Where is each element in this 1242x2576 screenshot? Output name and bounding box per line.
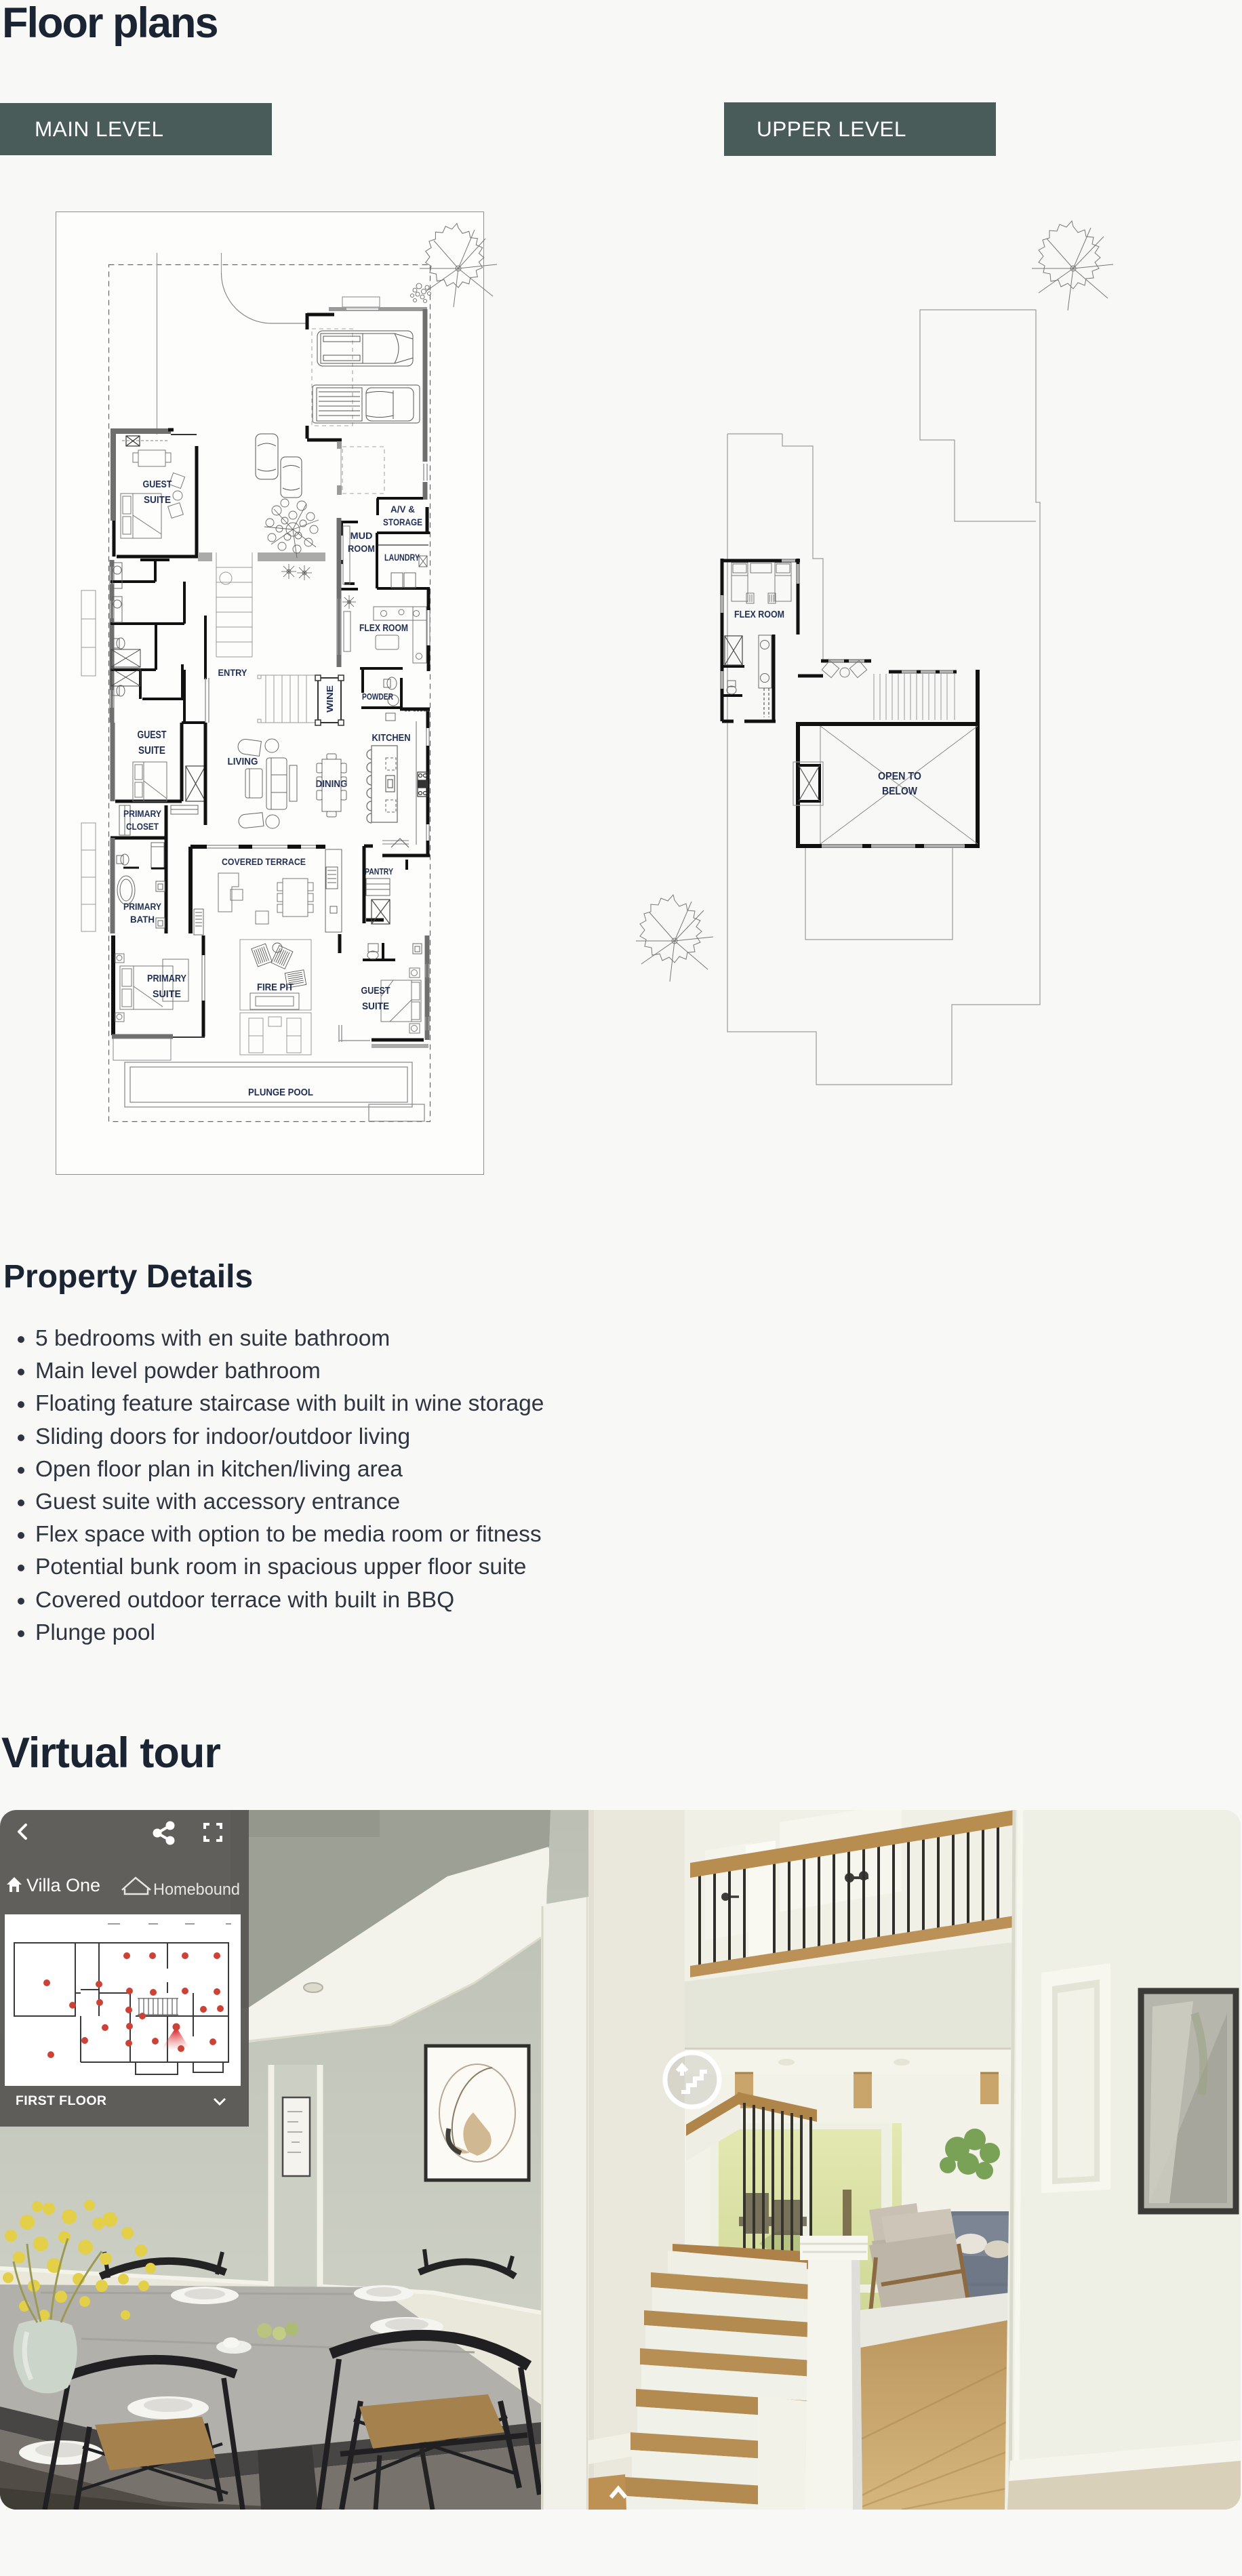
- svg-text:SUITE: SUITE: [153, 989, 181, 1000]
- svg-text:CLOSET: CLOSET: [126, 822, 159, 832]
- svg-text:GUEST: GUEST: [143, 479, 172, 490]
- svg-text:PRIMARY: PRIMARY: [123, 902, 161, 912]
- svg-text:PRIMARY: PRIMARY: [123, 809, 161, 819]
- svg-text:PRIMARY: PRIMARY: [147, 973, 186, 984]
- svg-text:KITCHEN: KITCHEN: [372, 733, 411, 744]
- svg-text:LAUNDRY: LAUNDRY: [384, 552, 420, 563]
- svg-text:SUITE: SUITE: [144, 495, 171, 506]
- svg-text:SUITE: SUITE: [138, 745, 165, 757]
- svg-text:FLEX ROOM: FLEX ROOM: [359, 623, 408, 634]
- svg-text:ROOM: ROOM: [348, 544, 375, 554]
- svg-text:MUD: MUD: [350, 531, 373, 541]
- svg-text:STORAGE: STORAGE: [383, 517, 422, 527]
- svg-text:OPEN TO: OPEN TO: [878, 771, 921, 782]
- svg-text:GUEST: GUEST: [361, 986, 390, 997]
- svg-text:PLUNGE POOL: PLUNGE POOL: [248, 1087, 313, 1098]
- svg-text:FIRE PIT: FIRE PIT: [257, 982, 294, 993]
- svg-text:GUEST: GUEST: [138, 729, 167, 741]
- svg-text:BATH: BATH: [130, 914, 155, 925]
- svg-text:WINE: WINE: [325, 685, 335, 712]
- svg-text:Homebound: Homebound: [153, 1880, 240, 1899]
- svg-text:LIVING: LIVING: [228, 757, 258, 767]
- svg-text:COVERED TERRACE: COVERED TERRACE: [222, 856, 306, 867]
- svg-text:FLEX ROOM: FLEX ROOM: [734, 609, 784, 620]
- svg-text:ENTRY: ENTRY: [218, 667, 248, 678]
- svg-text:SUITE: SUITE: [362, 1001, 389, 1012]
- svg-text:BELOW: BELOW: [882, 786, 917, 797]
- svg-text:DINING: DINING: [316, 779, 348, 790]
- svg-text:A/V &: A/V &: [390, 504, 415, 515]
- svg-text:PANTRY: PANTRY: [365, 867, 394, 877]
- svg-text:POWDER: POWDER: [362, 692, 393, 702]
